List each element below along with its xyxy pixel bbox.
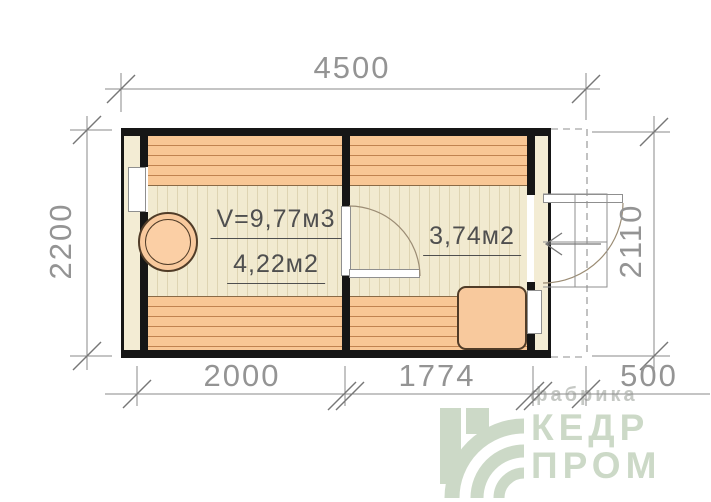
dim-top-value: 4500 — [314, 50, 391, 86]
exterior-door-swing-arc — [543, 203, 623, 283]
roof-overhang-dashed-outline — [551, 129, 587, 357]
dim-bottom-center-value: 1774 — [399, 358, 476, 394]
dim-bottom-right-value: 500 — [620, 358, 678, 394]
floor-plan-canvas: фабрика КЕДР ПРОМ — [0, 0, 711, 502]
dim-left-value: 2200 — [43, 203, 79, 280]
steam-room-volume-label: V=9,77м3 — [210, 205, 341, 239]
interior-door-swing-arc — [349, 206, 420, 276]
steam-room-area-label: 4,22м2 — [227, 250, 325, 284]
dimension-bottom-ticks — [123, 380, 600, 410]
rest-room-area-label: 3,74м2 — [423, 222, 521, 256]
entrance-arrow-icon — [546, 233, 601, 255]
dim-right-value: 2110 — [613, 204, 649, 279]
porch-steps — [543, 194, 607, 287]
dim-bottom-left-value: 2000 — [204, 358, 281, 394]
